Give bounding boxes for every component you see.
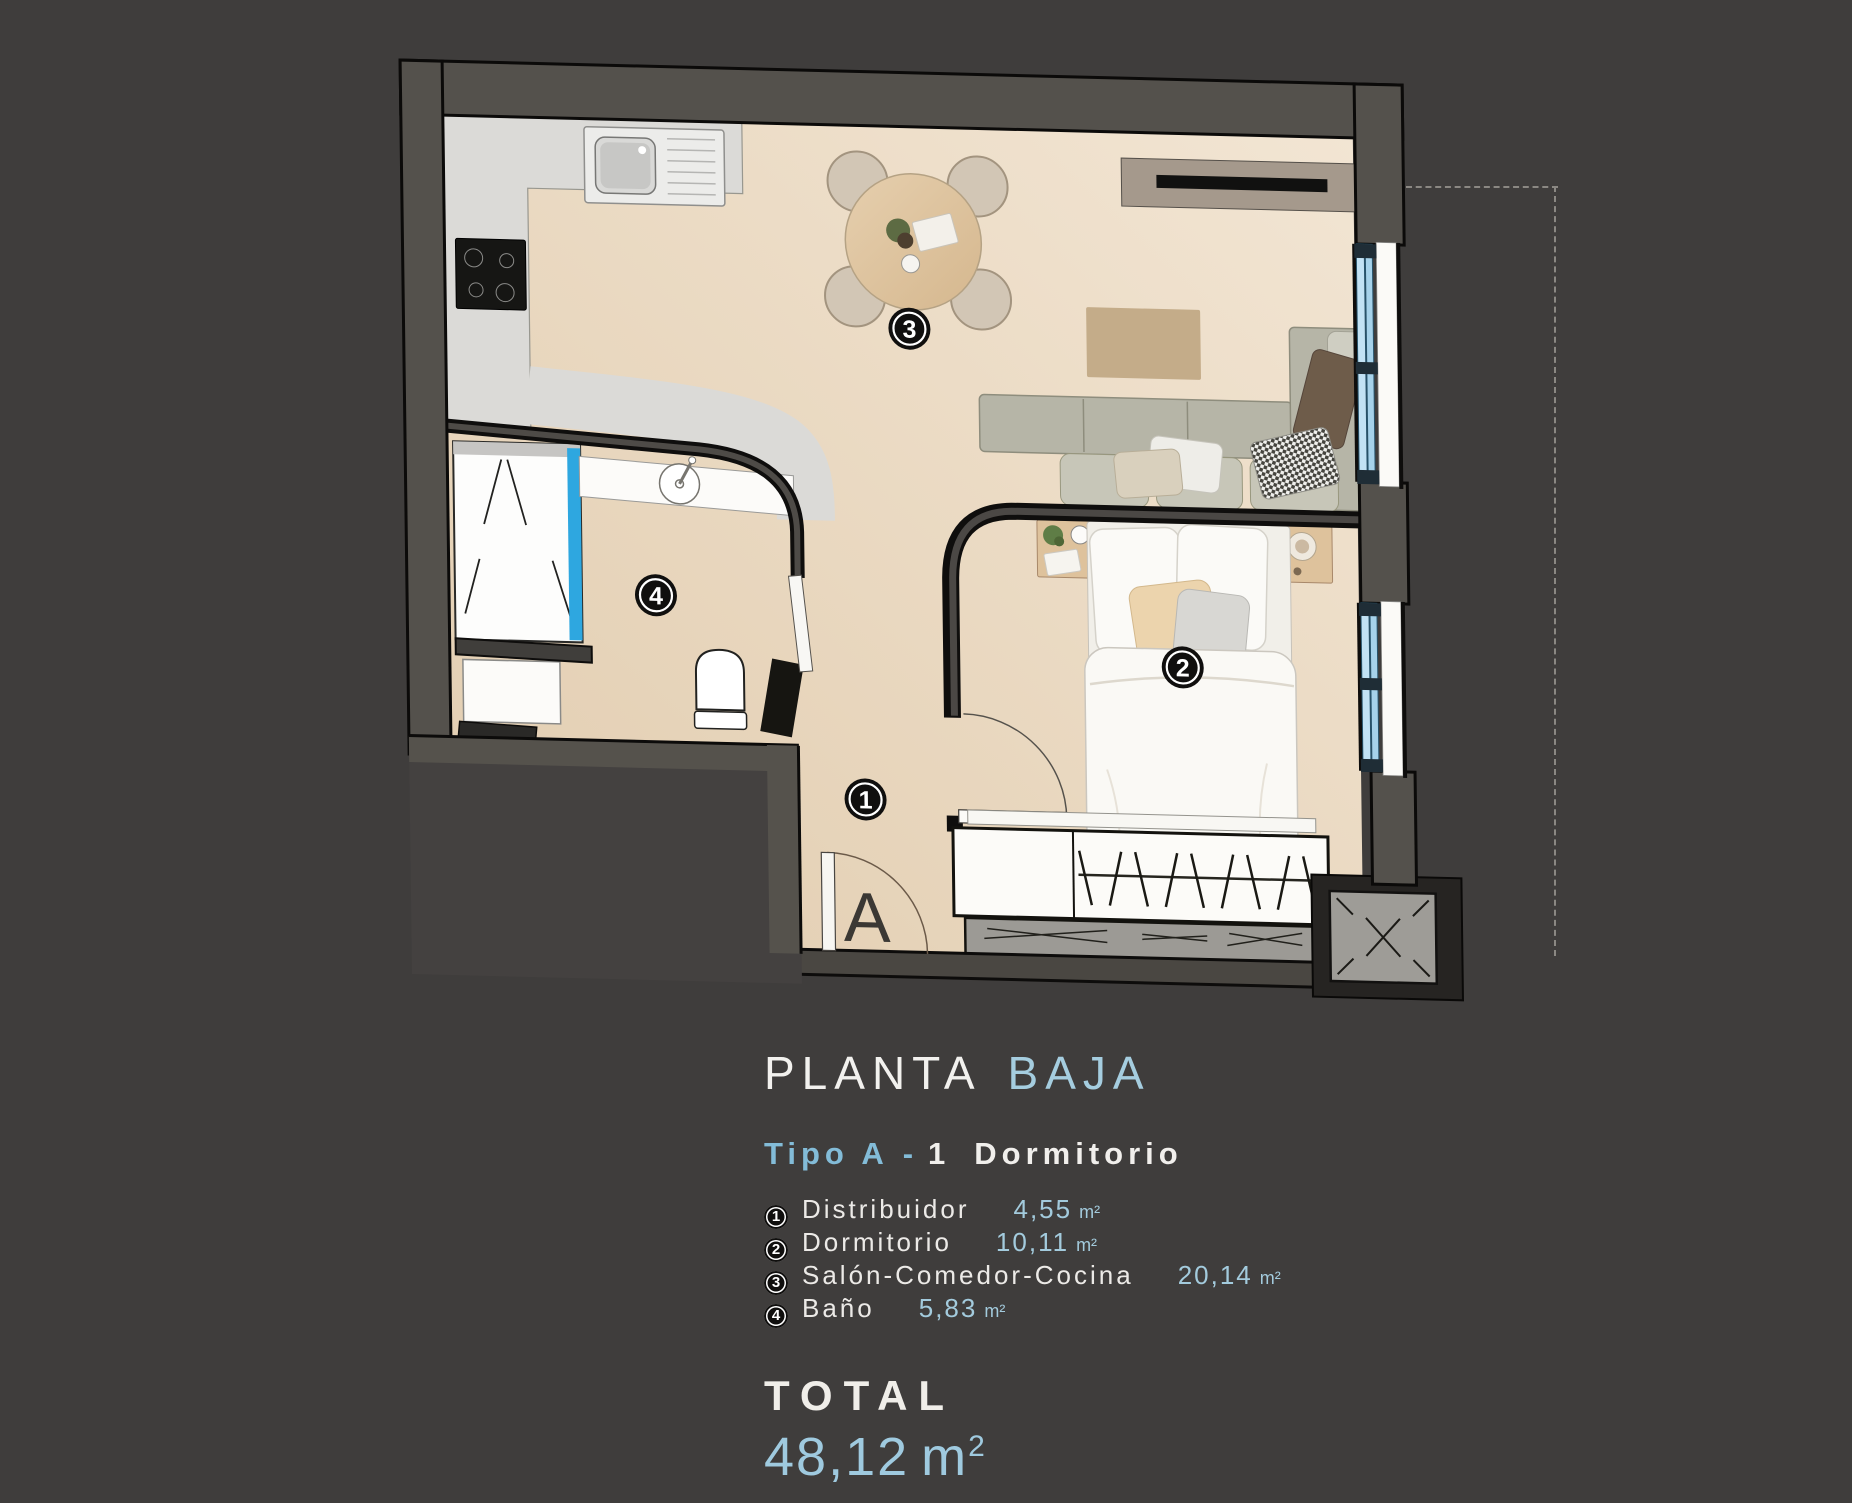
legend-unit: m²: [1260, 1268, 1281, 1288]
elevator-shaft: [1311, 875, 1463, 1001]
legend-label: Dormitorio: [802, 1227, 952, 1257]
total-unit: m: [921, 1427, 968, 1487]
legend-unit: m²: [1076, 1235, 1097, 1255]
cooktop-icon: [455, 238, 526, 310]
unit-type: Tipo A: [764, 1136, 889, 1171]
kitchen-sink: [584, 127, 725, 207]
legend-row-dormitorio: 2Dormitorio10,11m²: [764, 1229, 1504, 1262]
svg-text:4: 4: [649, 582, 663, 610]
svg-text:3: 3: [902, 316, 916, 344]
shower: [453, 441, 583, 642]
legend-unit: m²: [1079, 1202, 1100, 1222]
bedroom-count: 1: [928, 1136, 950, 1171]
total-label: TOTAL: [764, 1372, 1504, 1420]
info-panel: PLANTABAJA Tipo A-1Dormitorio 1Distribui…: [764, 1046, 1504, 1488]
legend-bullet-4: 4: [764, 1304, 788, 1328]
bedroom-label: Dormitorio: [974, 1136, 1182, 1171]
floor-plan-drawing: 1 2 3 4 A: [398, 52, 1470, 1019]
legend-bullet-3: 3: [764, 1271, 788, 1295]
tv-unit: [1121, 158, 1360, 212]
svg-text:2: 2: [1176, 654, 1190, 682]
unit-type-subtitle: Tipo A-1Dormitorio: [764, 1136, 1504, 1172]
legend-value: 5,83: [919, 1293, 978, 1323]
legend-row-salon: 3Salón-Comedor-Cocina20,14m²: [764, 1262, 1504, 1295]
room-legend: 1Distribuidor4,55m² 2Dormitorio10,11m² 3…: [764, 1196, 1504, 1328]
total-value: 48,12m2: [764, 1426, 1504, 1488]
page-title: PLANTABAJA: [764, 1046, 1504, 1100]
legend-value: 20,14: [1178, 1260, 1253, 1290]
boundary-dashed-horizontal: [1406, 186, 1558, 188]
legend-label: Distribuidor: [802, 1194, 970, 1224]
total-number: 48,12: [764, 1427, 909, 1487]
entrance-label: A: [843, 878, 891, 957]
building-mass: [409, 734, 803, 984]
toilet: [694, 649, 747, 729]
total-unit-sup: 2: [968, 1430, 987, 1463]
washer-space: [463, 659, 561, 723]
subtitle-separator: -: [903, 1136, 918, 1171]
window-bedroom: [1357, 601, 1407, 778]
legend-label: Baño: [802, 1293, 875, 1323]
legend-row-distribuidor: 1Distribuidor4,55m²: [764, 1196, 1504, 1229]
legend-label: Salón-Comedor-Cocina: [802, 1260, 1134, 1290]
floor-plan: 1 2 3 4 A: [398, 52, 1458, 992]
boundary-dashed-vertical: [1554, 186, 1556, 956]
title-secondary: BAJA: [1008, 1047, 1151, 1099]
sofa-pillow-beige: [1113, 449, 1183, 499]
table-cup: [901, 255, 919, 273]
legend-value: 10,11: [996, 1227, 1069, 1257]
legend-bullet-2: 2: [764, 1238, 788, 1262]
rug: [1086, 307, 1201, 380]
legend-value: 4,55: [1014, 1194, 1073, 1224]
title-primary: PLANTA: [764, 1047, 982, 1099]
window-living: [1352, 242, 1403, 489]
legend-bullet-1: 1: [764, 1205, 788, 1229]
page: { "page": { "background": "#3f3d3c" }, "…: [0, 0, 1852, 1503]
svg-text:1: 1: [858, 786, 872, 814]
legend-unit: m²: [984, 1301, 1005, 1321]
legend-row-bano: 4Baño5,83m²: [764, 1295, 1504, 1328]
